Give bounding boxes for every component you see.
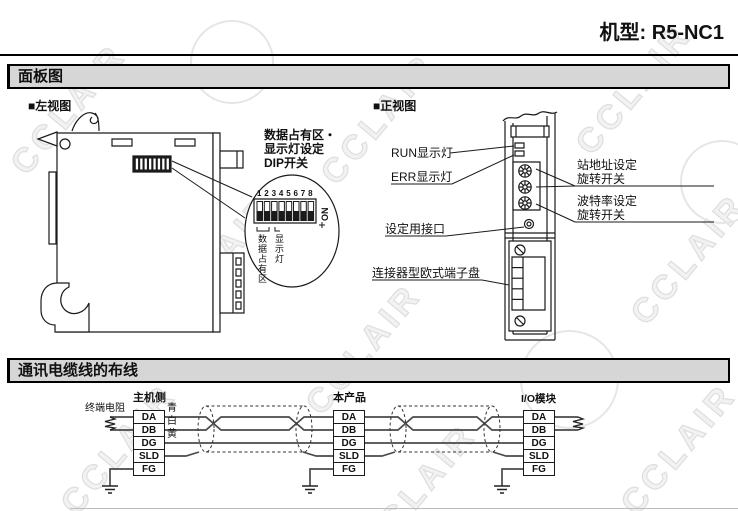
cable1-da [164, 417, 334, 430]
ground-symbol [102, 486, 118, 493]
side-connector [220, 253, 244, 313]
terminal-cell: DG [133, 436, 165, 450]
mount-hook [72, 113, 99, 131]
resistor-left [105, 417, 115, 430]
fg1-wire [110, 469, 134, 486]
ground-symbol [494, 486, 510, 493]
setting-port-label: 设定用接口 [385, 222, 445, 236]
break-line [503, 112, 557, 121]
wire-color-dg: 黄 [167, 429, 177, 440]
rotary-switch-station-x10 [519, 165, 531, 177]
run-led-label: RUN显示灯 [391, 146, 453, 160]
cable2-sld-left [364, 452, 395, 456]
run-led [515, 143, 524, 148]
dip-callout-label: 数据占有区・ 显示灯设定 DIP开关 [264, 128, 336, 170]
block-name-io: I/O模块 [521, 393, 556, 405]
terminator-label: 终端电阻 [85, 403, 125, 414]
err-led-label: ERR显示灯 [391, 170, 452, 184]
terminal-cell: DG [523, 436, 555, 450]
terminal-cell: DB [333, 423, 365, 437]
ground-symbol [302, 486, 318, 493]
dip-switch-block [133, 156, 171, 172]
cable1-sld-left [164, 452, 199, 456]
fg3-wire [502, 469, 524, 486]
terminal-cell: FG [133, 462, 165, 476]
cable1-sld-right [303, 452, 334, 456]
dip-single-label: 显示灯 [274, 234, 284, 268]
terminal-cell: DB [133, 423, 165, 437]
diagram-artwork [0, 0, 738, 511]
dip-switch-numbers: 12345678 [257, 189, 315, 198]
handle [511, 126, 549, 137]
block-name-host: 主机侧 [133, 392, 166, 404]
terminal-cell: SLD [523, 449, 555, 463]
bottom-table-edge [70, 508, 738, 509]
terminal-block-product: DA DB DG SLD FG [333, 410, 365, 476]
cable1-db [164, 417, 334, 430]
wire-color-db: 白 [167, 416, 177, 427]
block-name-product: 本产品 [333, 392, 366, 404]
baud-rate-label: 波特率设定 旋转开关 [577, 194, 637, 222]
terminal-cell: FG [523, 462, 555, 476]
terminal-cell: SLD [133, 449, 165, 463]
rotary-switch-station-x1 [519, 181, 531, 193]
terminal-cell: SLD [333, 449, 365, 463]
dip-group-label: 数据占有区 [257, 234, 267, 286]
terminal-cell: DA [523, 410, 555, 424]
terminal-block-front [509, 241, 551, 331]
terminal-cell: DB [523, 423, 555, 437]
right-terminator-stubs [554, 417, 578, 430]
cable2-sld-right [493, 452, 524, 456]
resistor-right [573, 417, 583, 430]
wire-color-da: 青 [167, 403, 177, 414]
err-led [515, 151, 524, 156]
fg2-wire [310, 469, 334, 486]
rotary-switch-baud [519, 197, 531, 209]
terminal-block-label: 连接器型欧式端子盘 [372, 266, 480, 280]
ground-symbols [102, 486, 510, 493]
terminal-cell: DG [333, 436, 365, 450]
terminal-cell: DA [333, 410, 365, 424]
terminal-cell: DA [133, 410, 165, 424]
dip-on-label: ON [320, 208, 330, 222]
station-address-label: 站地址设定 旋转开关 [577, 158, 637, 186]
terminal-block-host: DA DB DG SLD FG [133, 410, 165, 476]
manual-page: CCLAIR CCLAIR CCLAIR CCLAIR CCLAIR CCLAI… [0, 0, 738, 511]
terminal-cell: FG [333, 462, 365, 476]
setting-port-connector [525, 220, 534, 229]
terminal-block-io: DA DB DG SLD FG [523, 410, 555, 476]
release-lever [38, 132, 57, 146]
